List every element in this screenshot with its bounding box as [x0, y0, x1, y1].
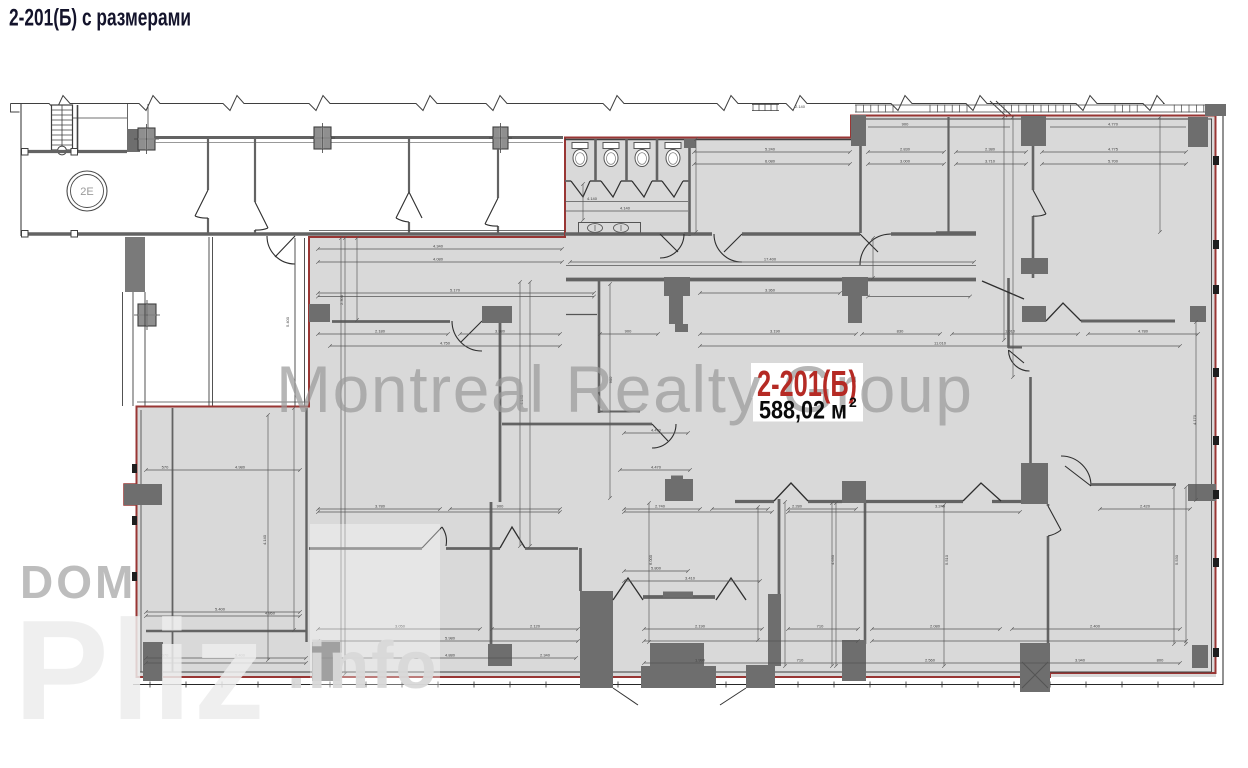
svg-text:5.800: 5.800	[651, 566, 662, 571]
svg-text:2.830: 2.830	[900, 147, 911, 152]
svg-text:5.240: 5.240	[765, 147, 776, 152]
svg-text:2.740: 2.740	[655, 504, 666, 509]
svg-text:2.190: 2.190	[695, 624, 706, 629]
svg-text:2-201(Б) с размерами: 2-201(Б) с размерами	[9, 5, 191, 32]
svg-text:5.530: 5.530	[1174, 554, 1179, 565]
svg-text:5.980: 5.980	[445, 636, 456, 641]
svg-text:2.080: 2.080	[930, 624, 941, 629]
svg-text:2: 2	[849, 394, 857, 410]
svg-text:800: 800	[1157, 658, 1164, 663]
svg-text:4.880: 4.880	[445, 653, 456, 658]
svg-text:2.180: 2.180	[375, 329, 386, 334]
svg-text:11.010: 11.010	[934, 341, 947, 346]
svg-text:6.000: 6.000	[648, 554, 653, 565]
svg-text:2.300: 2.300	[339, 294, 344, 305]
svg-text:3.940: 3.940	[1075, 658, 1086, 663]
svg-text:3.710: 3.710	[985, 159, 996, 164]
svg-text:2.420: 2.420	[1140, 504, 1151, 509]
svg-text:710: 710	[817, 624, 824, 629]
svg-text:2.120: 2.120	[530, 624, 541, 629]
svg-text:6.080: 6.080	[765, 159, 776, 164]
svg-text:3.240: 3.240	[935, 504, 946, 509]
svg-text:3.780: 3.780	[375, 504, 386, 509]
svg-text:3.000: 3.000	[900, 159, 911, 164]
svg-text:4.140: 4.140	[620, 206, 631, 211]
svg-text:830: 830	[897, 329, 904, 334]
svg-text:900: 900	[497, 504, 504, 509]
svg-text:4.470: 4.470	[651, 465, 662, 470]
svg-text:900: 900	[902, 122, 909, 127]
svg-text:2.140: 2.140	[795, 104, 806, 109]
svg-text:4.750: 4.750	[440, 341, 451, 346]
svg-text:1.010: 1.010	[1005, 329, 1016, 334]
svg-text:710: 710	[797, 658, 804, 663]
svg-text:4.630: 4.630	[830, 554, 835, 565]
svg-text:900: 900	[625, 329, 632, 334]
svg-text:.info: .info	[287, 628, 438, 703]
svg-text:4.080: 4.080	[433, 257, 444, 262]
svg-text:570: 570	[162, 465, 169, 470]
svg-text:4.780: 4.780	[1138, 329, 1149, 334]
svg-text:17.400: 17.400	[764, 257, 777, 262]
svg-text:5.510: 5.510	[944, 554, 949, 565]
svg-text:4.170: 4.170	[1192, 414, 1197, 425]
svg-text:1.990: 1.990	[695, 658, 706, 663]
svg-text:2.560: 2.560	[925, 658, 936, 663]
svg-text:5.400: 5.400	[285, 316, 290, 327]
svg-text:4.980: 4.980	[235, 465, 246, 470]
svg-text:4.775: 4.775	[1108, 147, 1119, 152]
svg-text:4.340: 4.340	[433, 244, 444, 249]
svg-text:588,02 м: 588,02 м	[759, 397, 847, 425]
svg-text:3.190: 3.190	[770, 329, 781, 334]
svg-text:3.980: 3.980	[495, 329, 506, 334]
svg-text:3.410: 3.410	[685, 576, 696, 581]
svg-text:Montreal Realty Group: Montreal Realty Group	[276, 352, 974, 426]
svg-text:4.770: 4.770	[1108, 122, 1119, 127]
svg-text:4.470: 4.470	[651, 428, 662, 433]
svg-text:4.140: 4.140	[587, 196, 598, 201]
svg-text:2E: 2E	[80, 186, 93, 198]
svg-text:5.700: 5.700	[1108, 159, 1119, 164]
svg-text:2.340: 2.340	[540, 653, 551, 658]
svg-text:2.380: 2.380	[985, 147, 996, 152]
svg-text:3.360: 3.360	[765, 288, 776, 293]
svg-text:2.280: 2.280	[792, 504, 803, 509]
svg-text:2.400: 2.400	[1090, 624, 1101, 629]
svg-text:5.170: 5.170	[450, 288, 461, 293]
svg-text:Pliz: Pliz	[14, 591, 267, 750]
svg-text:4.140: 4.140	[262, 534, 267, 545]
